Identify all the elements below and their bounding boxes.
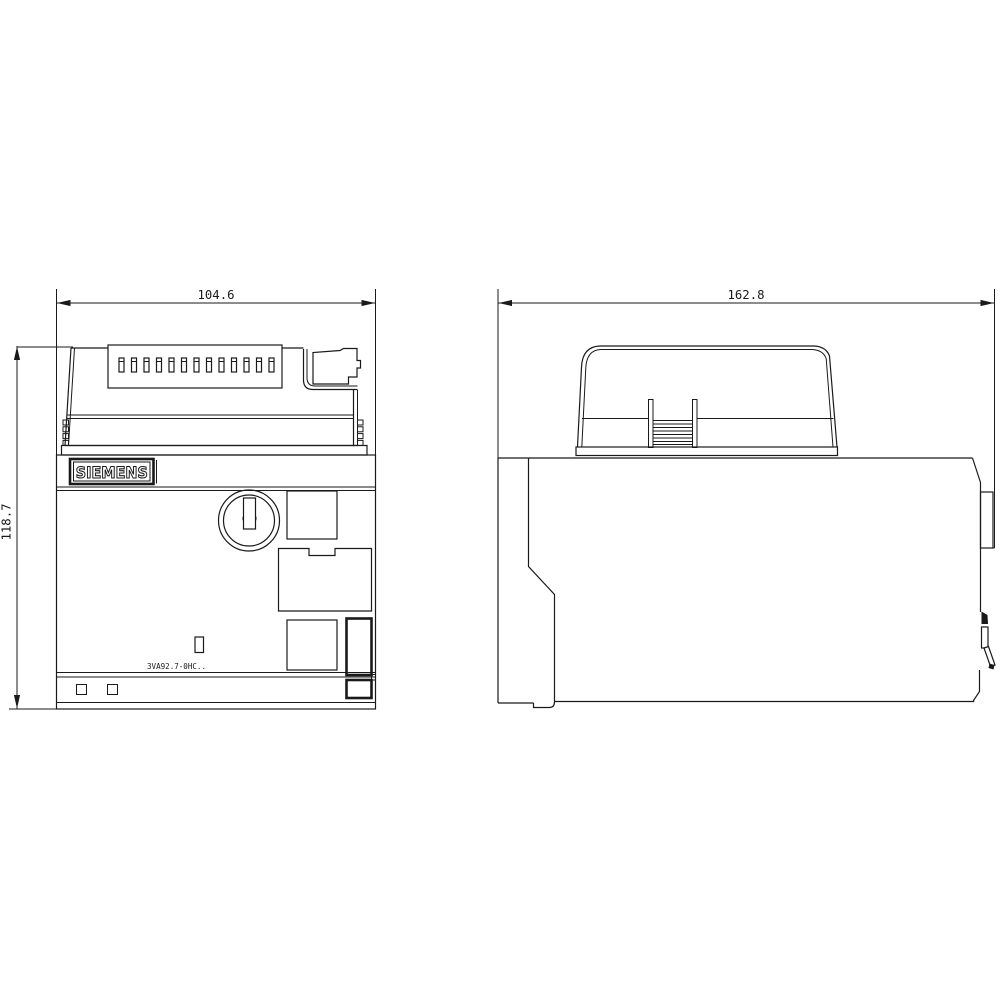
- arrow-left-icon: [57, 300, 71, 306]
- breaker-body-outline: [498, 458, 981, 708]
- breaker-front-face: SIEMENS 3VA92.7-0HC..: [57, 455, 376, 709]
- front-height-label: 118.7: [0, 504, 14, 541]
- arrow-left-icon: [499, 300, 513, 306]
- test-slot: [195, 637, 204, 653]
- siemens-nameplate: SIEMENS: [70, 459, 157, 484]
- side-width-label: 162.8: [728, 287, 765, 302]
- accessory-window-lower: [287, 620, 337, 670]
- base-plate: [62, 446, 368, 456]
- terminal-comb-block: [108, 345, 282, 388]
- front-width-dimension: 104.6: [57, 287, 376, 455]
- key-slot: [244, 498, 256, 529]
- key-lock: [219, 490, 280, 551]
- dimension-drawing: 104.6 118.7: [0, 0, 1000, 1000]
- handle-cover: [576, 346, 838, 456]
- side-view: 162.8: [498, 287, 995, 708]
- right-mounting-teeth: [358, 420, 364, 445]
- model-code-label: 3VA92.7-0HC..: [147, 662, 206, 671]
- terminal-comb-slots: [119, 358, 274, 372]
- front-height-dimension: 118.7: [0, 346, 73, 709]
- side-width-dimension: 162.8: [498, 287, 995, 548]
- arrow-down-icon: [14, 695, 20, 709]
- side-connector-block: [313, 349, 361, 385]
- mounting-bracket-contour: [529, 458, 555, 702]
- motor-operator-top-unit: [62, 345, 368, 455]
- front-view: 104.6 118.7: [0, 287, 376, 709]
- rear-flange: [981, 492, 995, 548]
- arrow-right-icon: [981, 300, 995, 306]
- arrow-right-icon: [362, 300, 376, 306]
- shaft-ladder-hatch: [653, 421, 693, 445]
- accessory-window-upper: [287, 491, 337, 539]
- accessory-cover-notched: [279, 549, 372, 612]
- fixing-hole-left: [77, 685, 87, 695]
- terminal-shutter-lower: [347, 680, 372, 698]
- fixing-hole-right: [108, 685, 118, 695]
- arrow-up-icon: [14, 347, 20, 361]
- front-width-label: 104.6: [198, 287, 235, 302]
- dimension-drawing-page: 104.6 118.7: [0, 0, 1000, 1000]
- handle-base-plate: [576, 447, 838, 456]
- brand-logo: SIEMENS: [76, 463, 148, 482]
- latch-lever: [982, 612, 996, 670]
- terminal-shutter-upper: [347, 619, 372, 676]
